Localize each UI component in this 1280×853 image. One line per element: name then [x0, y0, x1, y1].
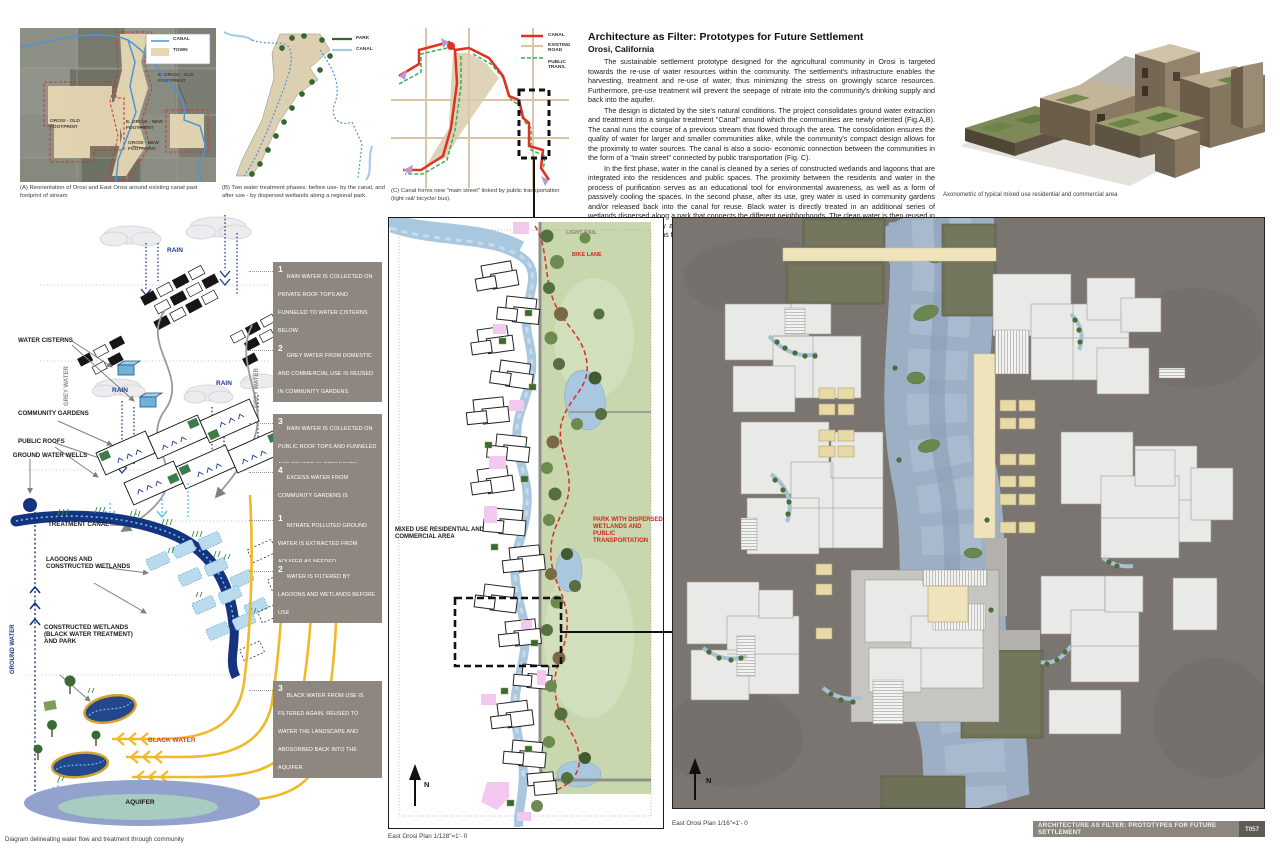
- sheet-title-block: ARCHITECTURE AS FILTER: PROTOTYPES FOR F…: [1033, 821, 1265, 837]
- public-roofs-label: PUBLIC ROOFS: [18, 438, 65, 445]
- lagoons-label: LAGOONS AND CONSTRUCTED WETLANDS: [46, 556, 140, 570]
- note-6: 2 WATER IS FILTERED BY LAGOONS AND WETLA…: [273, 562, 382, 623]
- map-b-legend-canal: CANAL: [356, 47, 373, 52]
- iso-buildings: [78, 262, 288, 379]
- wetland-cells: [146, 531, 293, 661]
- note-7: 3 BLACK WATER FROM USE IS FILTERED AGAIN…: [273, 681, 382, 778]
- water-cisterns-label: WATER CISTERNS: [18, 337, 73, 344]
- map-a-label-eorosi-new: E. OROSI - NEW FOOTPRINT: [126, 120, 186, 131]
- map-c-graphic: [391, 28, 569, 188]
- map-a-caption: (A) Reorientation of Orosi and East Oros…: [20, 185, 212, 200]
- note-2: 2 GREY WATER FROM DOMESTIC AND COMMERCIA…: [273, 341, 382, 402]
- callout-connector-vertical: [533, 158, 535, 217]
- map-c-legend-road: EXISTING ROAD: [548, 43, 572, 54]
- canal-node: [447, 42, 455, 50]
- park-wetlands-label: PARK WITH DISPERSED WETLANDS AND PUBLIC …: [593, 517, 665, 545]
- map-a-label-orosi-old: OROSI - OLD FOOTPRINT: [50, 119, 108, 130]
- detail-plan-graphic: [673, 218, 1264, 808]
- map-c-main-street: [391, 28, 569, 188]
- community-gardens-label: COMMUNITY GARDENS: [18, 410, 90, 417]
- front-small-tower: [1155, 126, 1200, 178]
- mixed-use-label: MIXED USE RESIDENTIAL AND COMMERCIAL ARE…: [395, 527, 485, 541]
- ground-water-line: [30, 503, 40, 811]
- constructed-wetlands-label: CONSTRUCTED WETLANDS (BLACK WATER TREATM…: [44, 624, 138, 645]
- sheet-title: ARCHITECTURE AS FILTER: PROTOTYPES FOR F…: [1033, 822, 1239, 836]
- note-7-number: 3: [278, 684, 283, 693]
- north-arrow: [409, 764, 421, 806]
- map-a-label-eorosi-old: E. OROSI - OLD FOOTPRINT: [158, 73, 212, 84]
- note-4-number: 4: [278, 466, 283, 475]
- map-a-legend-canal: CANAL: [173, 37, 190, 42]
- park-trees: [38, 685, 96, 760]
- detail-plan-caption: East Orosi Plan 1/16"=1'- 0: [672, 820, 872, 828]
- rain-label-1: RAIN: [167, 247, 183, 254]
- note-1: 1 RAIN WATER IS COLLECTED ON PRIVATE ROO…: [273, 262, 382, 341]
- note-5-text: NITRATE POLLUTED GROUND WATER IS EXTRACT…: [278, 523, 367, 565]
- site-plan-north-label: N: [424, 780, 429, 789]
- treatment-canal-path: [16, 507, 236, 677]
- axon-graphic: [945, 28, 1265, 190]
- map-b-caption: (B) Two water treatment phases: before u…: [222, 185, 386, 200]
- treatment-canal-label: TREATMENT CANAL: [48, 521, 109, 528]
- ground-water-wells-label: GROUND WATER WELLS: [10, 452, 90, 459]
- paragraph-2: The design is dictated by the site's nat…: [588, 106, 935, 163]
- detail-plan-north-label: N: [706, 776, 711, 785]
- note-2-number: 2: [278, 344, 283, 353]
- body-text: The sustainable settlement prototype des…: [588, 57, 935, 241]
- note-6-number: 2: [278, 565, 283, 574]
- map-b-legend-park: PARK: [356, 36, 369, 41]
- map-a-label-orosi-new: OROSI - NEW FOOTPRINT: [128, 141, 184, 152]
- note-1-text: RAIN WATER IS COLLECTED ON PRIVATE ROOF …: [278, 274, 373, 334]
- note-6-text: WATER IS FILTERED BY LAGOONS AND WETLAND…: [278, 574, 375, 616]
- aquifer-label: AQUIFER: [100, 799, 180, 806]
- bike-lane-label: BIKE LANE: [572, 252, 602, 258]
- paragraph-1: The sustainable settlement prototype des…: [588, 57, 935, 105]
- grey-water-label-left: GREY WATER: [64, 366, 70, 406]
- rain-label-2: RAIN: [112, 387, 128, 394]
- far-right-tall: [1231, 62, 1263, 129]
- site-plan-caption: East Orosi Plan 1/128"=1'- 0: [388, 833, 588, 841]
- east-orosi-detail-plan: [672, 217, 1265, 809]
- page-title: Architecture as Filter: Prototypes for F…: [588, 31, 936, 43]
- callout-connector-horizontal: [560, 631, 672, 633]
- map-c-legend-trans: PUBLIC TRANS.: [548, 60, 572, 71]
- park-wetland-blobs: [34, 676, 139, 782]
- axonometric-render: [945, 28, 1265, 190]
- note-1-number: 1: [278, 265, 283, 274]
- sheet-number: T057: [1239, 821, 1265, 837]
- map-a-legend-town: TOWN: [173, 48, 188, 53]
- map-c-legend-canal: CANAL: [548, 33, 565, 38]
- axon-caption: Axonometric of typical mixed use residen…: [943, 192, 1158, 200]
- note-5-number: 1: [278, 514, 283, 523]
- map-c-caption: (C) Canal forms new "main street" linked…: [391, 188, 563, 203]
- rain-label-3: RAIN: [216, 380, 232, 387]
- grey-water-label-right: GREY WATER: [254, 368, 260, 408]
- ground-water-label: GROUND WATER: [10, 624, 16, 674]
- note-3-number: 3: [278, 417, 283, 426]
- note-2-text: GREY WATER FROM DOMESTIC AND COMMERCIAL …: [278, 353, 373, 395]
- presentation-board: CANAL TOWN E. OROSI - OLD FOOTPRINT OROS…: [0, 0, 1280, 853]
- black-water-label: BLACK WATER: [148, 737, 196, 744]
- light-rail-label: LIGHT RAIL: [566, 230, 597, 236]
- page-subtitle: Orosi, California: [588, 44, 936, 54]
- note-7-text: BLACK WATER FROM USE IS FILTERED AGAIN, …: [278, 693, 364, 771]
- water-diagram-caption: Diagram delineating water flow and treat…: [5, 836, 305, 844]
